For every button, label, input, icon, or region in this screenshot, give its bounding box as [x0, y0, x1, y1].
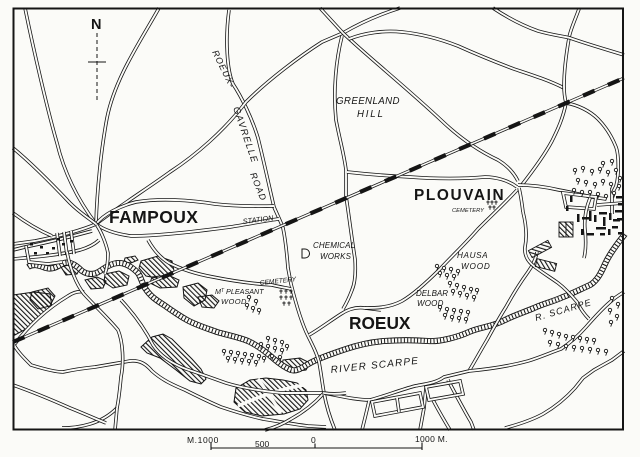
svg-text:HAUSA: HAUSA [457, 251, 488, 260]
svg-text:CEMETERY: CEMETERY [452, 208, 485, 214]
svg-text:WOOD: WOOD [221, 297, 247, 306]
svg-text:CHEMICAL: CHEMICAL [313, 241, 355, 250]
svg-text:PLOUVAIN: PLOUVAIN [414, 187, 505, 204]
svg-text:1000 M.: 1000 M. [415, 434, 448, 444]
svg-text:M.1000: M.1000 [187, 435, 219, 445]
svg-text:DELBAR: DELBAR [416, 289, 448, 298]
svg-text:WORKS: WORKS [320, 252, 352, 261]
svg-text:0: 0 [311, 435, 316, 445]
svg-text:500: 500 [255, 439, 269, 449]
svg-text:N: N [91, 17, 101, 33]
svg-text:FAMPOUX: FAMPOUX [109, 207, 198, 227]
svg-text:ROEUX: ROEUX [349, 313, 411, 333]
svg-text:HILL: HILL [357, 109, 385, 120]
svg-text:GREENLAND: GREENLAND [336, 96, 400, 107]
svg-text:WOOD: WOOD [461, 262, 491, 271]
svg-text:WOOD: WOOD [417, 299, 444, 308]
